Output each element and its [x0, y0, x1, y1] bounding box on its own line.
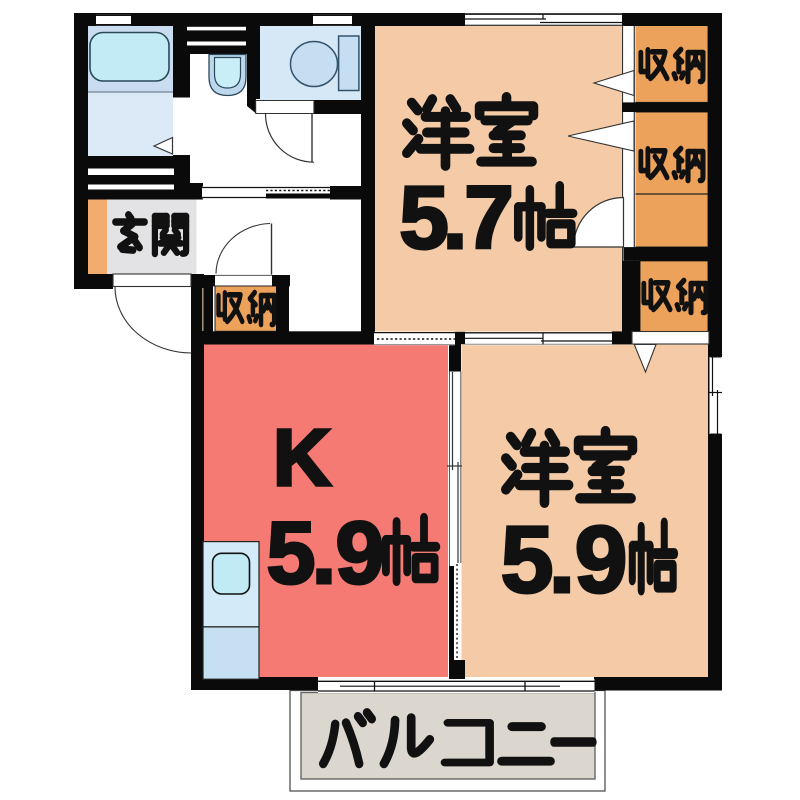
- svg-text:5: 5: [501, 507, 554, 613]
- svg-text:K: K: [273, 413, 331, 502]
- svg-text:7: 7: [464, 167, 514, 267]
- svg-text:9: 9: [575, 507, 628, 613]
- svg-text:.: .: [312, 503, 336, 602]
- svg-text:.: .: [549, 507, 575, 613]
- svg-text:9: 9: [336, 503, 385, 602]
- svg-text:5: 5: [267, 503, 316, 602]
- svg-text:5: 5: [399, 167, 449, 267]
